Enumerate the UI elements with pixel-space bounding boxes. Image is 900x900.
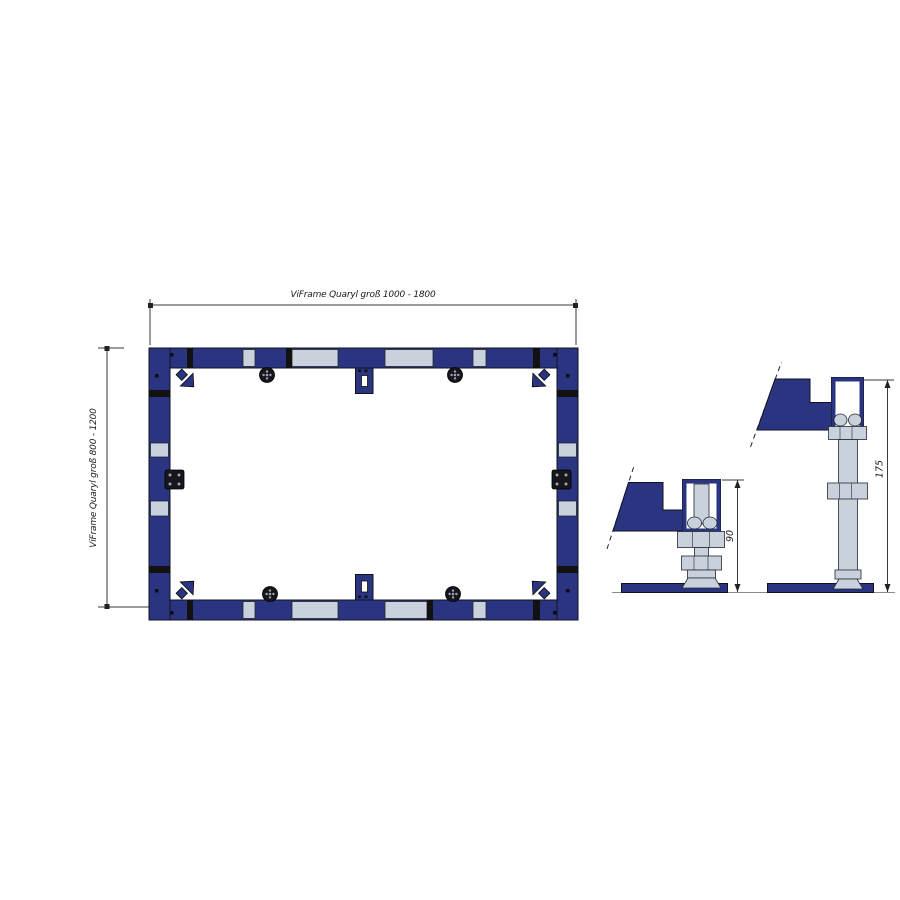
corner-arrow-icon [173,575,201,603]
short-foot-dimension: 90 [722,480,744,592]
dim-end-marker [105,604,110,609]
tall-foot-dimension: 175 [864,380,894,592]
short-foot-dimension-label: 90 [725,530,736,542]
hex-nut [682,556,722,570]
hex-nut [828,483,868,499]
left-dimension-label: ViFrame Quaryl groß 800 - 1200 [89,408,99,548]
foot-plate [833,579,863,589]
mount-plate-icon [552,470,571,489]
adjuster-knob-icon [446,587,461,602]
threaded-rod [839,440,858,571]
top-dimension-label: ViFrame Quaryl groß 1000 - 1800 [291,290,436,300]
bracket-tab-icon [356,575,374,601]
dim-end-marker [105,346,110,351]
adjuster-knob-icon [260,368,275,383]
tall-foot-assembly [751,362,874,593]
drawing-canvas: ViFrame Quaryl groß 1000 - 1800 ViFrame … [0,0,900,900]
dim-end-marker [148,303,153,308]
foot-bracket-icon [757,379,832,430]
foot-plate [682,578,721,588]
top-dimension: ViFrame Quaryl groß 1000 - 1800 [148,290,578,345]
bracket-tab-icon [356,368,374,394]
frame-bottom-rail [149,600,578,620]
dim-end-marker [573,303,578,308]
adjustable-foot [678,480,725,589]
hex-nut [829,427,867,440]
hex-nut [678,532,725,548]
frame-top-rail [149,348,578,368]
adjuster-knob-icon [448,368,463,383]
adjuster-knob-icon [263,587,278,602]
plan-view: ViFrame Quaryl groß 1000 - 1800 ViFrame … [89,290,578,620]
mount-plate-icon [165,470,184,489]
corner-arrow-icon [526,575,554,603]
tall-foot-dimension-label: 175 [875,460,886,478]
side-view: 90 [607,362,895,593]
short-foot-assembly [607,466,728,593]
foot-bracket-icon [613,483,683,532]
adjustable-foot [828,378,868,590]
corner-arrow-icon [173,366,201,394]
technical-drawing: ViFrame Quaryl groß 1000 - 1800 ViFrame … [0,0,900,900]
corner-arrow-icon [526,366,554,394]
